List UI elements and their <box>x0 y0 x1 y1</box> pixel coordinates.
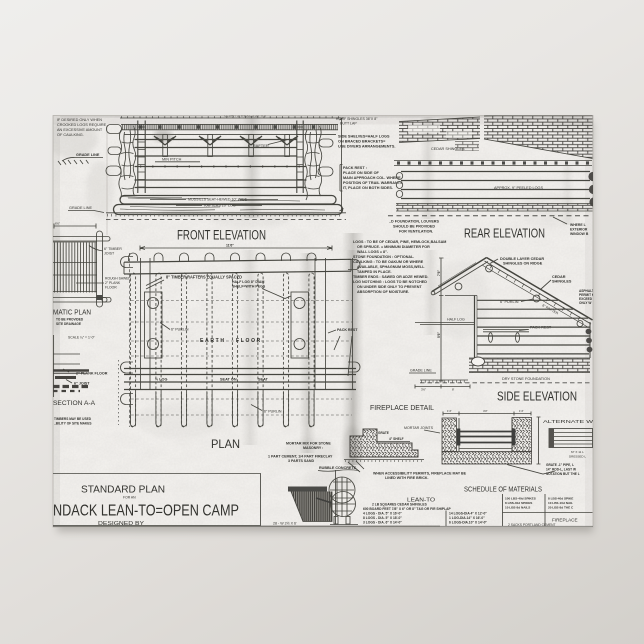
svg-text:5'6": 5'6" <box>437 332 441 338</box>
svg-text:LOG NOTCHING : LOGS TO BE NOTC: LOG NOTCHING : LOGS TO BE NOTCHED <box>353 280 427 284</box>
svg-text:OF CAULKING.: OF CAULKING. <box>57 133 84 137</box>
svg-text:4" SHELF: 4" SHELF <box>389 437 404 441</box>
svg-text:FIREPLACE DETAIL: FIREPLACE DETAIL <box>370 405 434 412</box>
svg-text:14 LOGS-DIA 4" X 12'-0": 14 LOGS-DIA 4" X 12'-0" <box>449 512 487 516</box>
svg-text:FOR AN: FOR AN <box>123 496 136 500</box>
svg-text:WALL LOGS = 8".: WALL LOGS = 8". <box>357 250 388 254</box>
svg-text:TO BE PROVIDED: TO BE PROVIDED <box>56 318 84 322</box>
svg-text:FRONT ELEVATION: FRONT ELEVATION <box>177 228 266 243</box>
svg-text:7'6": 7'6" <box>437 270 441 276</box>
svg-text:6" PURLIN: 6" PURLIN <box>500 300 519 304</box>
svg-text:APPROX. 9" PEELED LOGS: APPROX. 9" PEELED LOGS <box>494 186 544 190</box>
svg-text:10 LBS-8d NAILS: 10 LBS-8d NAILS <box>505 506 530 510</box>
svg-text:FOR VENTILATION.: FOR VENTILATION. <box>399 230 433 234</box>
svg-text:11'6": 11'6" <box>226 244 234 248</box>
svg-text:GRADE LINE: GRADE LINE <box>76 153 100 157</box>
svg-text:1'4": 1'4" <box>519 409 524 413</box>
svg-text:ON UNDER SIDE ONLY TO PREVENT: ON UNDER SIDE ONLY TO PREVENT <box>357 285 422 289</box>
svg-text:..BILITY OF SITE MAKES: ..BILITY OF SITE MAKES <box>54 422 92 426</box>
svg-text:SIDE ELEVATION: SIDE ELEVATION <box>497 390 577 404</box>
svg-text:JOIST: JOIST <box>104 252 115 256</box>
svg-text:DOUBLE LAYER CEDAR: DOUBLE LAYER CEDAR <box>500 257 544 261</box>
svg-text:PACK REST :: PACK REST : <box>343 166 367 170</box>
svg-text:WINDOW B: WINDOW B <box>570 232 589 236</box>
svg-text:WHERE L: WHERE L <box>570 223 586 227</box>
svg-text:8 LOGS - DIA. 5" X 18'-0": 8 LOGS - DIA. 5" X 18'-0" <box>363 516 402 520</box>
svg-text:6" PURLIN: 6" PURLIN <box>264 410 282 414</box>
svg-text:SEAT ON: SEAT ON <box>220 378 237 382</box>
svg-text:1 LOG-DIA.14" X 16'-0": 1 LOG-DIA.14" X 16'-0" <box>449 516 485 520</box>
svg-text:GRADE LINE: GRADE LINE <box>69 206 92 210</box>
svg-text:GRATE -1" PIPE, L: GRATE -1" PIPE, L <box>546 463 574 467</box>
svg-text:8 LBS-40d SPIKES: 8 LBS-40d SPIKES <box>505 501 532 505</box>
svg-text:1 PART CEMENT, 1/4 PART FIRECL: 1 PART CEMENT, 1/4 PART FIRECLAY <box>268 455 333 459</box>
svg-text:ABSORPTION OF MOISTURE.: ABSORPTION OF MOISTURE. <box>357 290 409 294</box>
svg-text:MUDSILLS SEAT-HEWED 10" WIDE: MUDSILLS SEAT-HEWED 10" WIDE <box>188 198 248 202</box>
svg-text:2" PLANK FLOOR: 2" PLANK FLOOR <box>76 372 108 376</box>
svg-text:OR SPRUCE. = MINIMUM DIAMETER: OR SPRUCE. = MINIMUM DIAMETER FOR <box>357 245 430 249</box>
svg-text:IT, PLACE ON BOTH SIDES.: IT, PLACE ON BOTH SIDES. <box>343 186 393 190</box>
svg-text:CAULKING : TO BE OAKUM OR WHER: CAULKING : TO BE OAKUM OR WHERE <box>353 260 424 264</box>
svg-text:EXTERIOR: EXTERIOR <box>570 228 588 232</box>
svg-text:SHINGLES: SHINGLES <box>552 280 572 284</box>
svg-text:8 LBS-40d SPIKE: 8 LBS-40d SPIKE <box>548 497 573 501</box>
svg-text:SCHEDULE OF MATERIALS: SCHEDULE OF MATERIALS <box>464 485 542 494</box>
svg-text:ROOF SHINGLES 36"X 8": ROOF SHINGLES 36"X 8" <box>336 117 378 121</box>
svg-text:100 LBS-40d SPIKES: 100 LBS-40d SPIKES <box>505 497 536 501</box>
svg-text:CEDAR: CEDAR <box>552 275 566 279</box>
svg-text:GRADE LINE: GRADE LINE <box>410 369 432 373</box>
svg-text:½ LOG: ½ LOG <box>155 378 167 382</box>
svg-text:POSITION OF TRAIL WARRANTS: POSITION OF TRAIL WARRANTS <box>343 181 403 185</box>
svg-text:SEAT: SEAT <box>258 378 269 382</box>
svg-text:ROUGH SAWED: ROUGH SAWED <box>105 277 131 281</box>
svg-text:6" PURLIN: 6" PURLIN <box>171 328 189 332</box>
svg-text:LINED WITH FIRE BRICK.: LINED WITH FIRE BRICK. <box>385 476 429 480</box>
svg-text:DRESSED L: DRESSED L <box>569 455 586 459</box>
svg-text:TIMBER ENDS : SAWED OR ADZE HE: TIMBER ENDS : SAWED OR ADZE HEWED. <box>353 275 428 279</box>
svg-text:CROOKED LOGS REQUIRE: CROOKED LOGS REQUIRE <box>57 123 107 127</box>
svg-text:4 LOGS - DIA. 5" X 16'-0": 4 LOGS - DIA. 5" X 16'-0" <box>363 512 402 516</box>
svg-text:ALTERNATE W: ALTERNATE W <box>543 419 593 424</box>
svg-text:DRY STONE FOUNDATION: DRY STONE FOUNDATION <box>502 377 550 381</box>
svg-text:SECTION A-A: SECTION A-A <box>53 400 95 407</box>
svg-text:RAFTERS 10" LOG: RAFTERS 10" LOG <box>204 204 236 208</box>
svg-text:FLOOR: FLOOR <box>236 338 262 344</box>
svg-text:AVAILABLE, SPHAGNUM MOSS,WELL: AVAILABLE, SPHAGNUM MOSS,WELL <box>357 265 425 269</box>
svg-text:CEDAR SHINGLES: CEDAR SHINGLES <box>431 147 465 151</box>
svg-text:EARTH: EARTH <box>200 338 226 344</box>
svg-text:ON BRACED BRACKETS=: ON BRACED BRACKETS= <box>338 140 386 144</box>
svg-text:NOTATION BUT THE L: NOTATION BUT THE L <box>546 472 580 476</box>
svg-text:IF DESIRED ONLY WHEN: IF DESIRED ONLY WHEN <box>57 118 102 122</box>
svg-text:BUTT LAP: BUTT LAP <box>340 122 357 126</box>
svg-text:HALF LOG: HALF LOG <box>447 318 465 322</box>
svg-text:3 PARTS SAND: 3 PARTS SAND <box>288 459 314 463</box>
svg-text:HALF LOG 8" DIAM: HALF LOG 8" DIAM <box>232 280 264 284</box>
svg-text:USE DIVERS ARRANGEMENTS.: USE DIVERS ARRANGEMENTS. <box>338 145 395 149</box>
svg-text:FLOOR: FLOOR <box>105 286 117 290</box>
svg-text:6" TIMBER: 6" TIMBER <box>104 247 122 251</box>
svg-text:AN EXCESSIVE AMOUNT: AN EXCESSIVE AMOUNT <box>57 128 103 132</box>
svg-text:2" PLANK: 2" PLANK <box>105 281 121 285</box>
svg-text:SITE DRAINAGE: SITE DRAINAGE <box>56 322 81 326</box>
svg-text:28 - W 2½ X 6': 28 - W 2½ X 6' <box>273 522 297 526</box>
svg-text:MATIC PLAN: MATIC PLAN <box>53 310 91 317</box>
svg-text:600 BOARD FEET 7/8" X 6" OR 8: 600 BOARD FEET 7/8" X 6" OR 8" T&G OR FI… <box>363 507 451 511</box>
svg-text:MASONRY :: MASONRY : <box>303 446 323 450</box>
svg-text:REAR ELEVATION: REAR ELEVATION <box>464 226 545 241</box>
svg-text:MAIN APPROACH COL. WHERE: MAIN APPROACH COL. WHERE <box>343 176 401 180</box>
svg-text:PLACE ON SIDE OF: PLACE ON SIDE OF <box>343 171 380 175</box>
svg-text:MIN PITCH: MIN PITCH <box>162 158 182 162</box>
svg-text:20 LBS-8d THE C: 20 LBS-8d THE C <box>548 506 574 510</box>
svg-text:..D FOUNDATION, LOUVERS: ..D FOUNDATION, LOUVERS <box>389 220 439 224</box>
svg-text:FIREPLACE: FIREPLACE <box>552 518 578 523</box>
svg-text:3'6": 3'6" <box>421 388 426 392</box>
svg-text:GRATE: GRATE <box>378 431 389 435</box>
svg-text:STANDARD PLAN: STANDARD PLAN <box>81 484 165 496</box>
svg-text:TIMBERS MAY BE USED: TIMBERS MAY BE USED <box>54 417 92 421</box>
svg-text:10 LBS-10d NAIL: 10 LBS-10d NAIL <box>548 501 573 505</box>
svg-text:SHELF=WITH PEGS: SHELF=WITH PEGS <box>232 285 266 289</box>
svg-text:TAMPED IN PLACE.: TAMPED IN PLACE. <box>357 270 392 274</box>
svg-text:PACK REST: PACK REST <box>530 326 552 330</box>
svg-text:MORTAR JOINTS: MORTAR JOINTS <box>404 426 434 430</box>
svg-text:3 LOGS - DIA. 6" X 14'-0": 3 LOGS - DIA. 6" X 14'-0" <box>363 521 402 525</box>
svg-text:SHINGLES ON RIDGE: SHINGLES ON RIDGE <box>503 262 543 266</box>
svg-text:SCALE ¼" = 1'-0": SCALE ¼" = 1'-0" <box>68 336 96 340</box>
svg-text:STONE FOUNDATION : OPTIONAL.: STONE FOUNDATION : OPTIONAL. <box>353 255 414 259</box>
svg-text:M" X 11 L: M" X 11 L <box>571 450 584 454</box>
svg-text:14" ROD-L, LAST W: 14" ROD-L, LAST W <box>546 468 576 472</box>
svg-text:SIDE SHELVES=HALF LOGS: SIDE SHELVES=HALF LOGS <box>338 135 390 139</box>
svg-text:4'0": 4'0" <box>483 409 488 413</box>
svg-text:WHEN ACCESSIBILITY PERMITS, FI: WHEN ACCESSIBILITY PERMITS, FIREPLACE MA… <box>373 472 467 476</box>
svg-text:1'4": 1'4" <box>447 409 452 413</box>
svg-text:CEDAR SHINGLES 36" X 8": CEDAR SHINGLES 36" X 8" <box>224 114 268 118</box>
svg-text:SHOULD BE PROVIDED: SHOULD BE PROVIDED <box>393 225 435 229</box>
svg-text:2 LB SQUARES CEDAR SHINGLES: 2 LB SQUARES CEDAR SHINGLES <box>372 503 428 507</box>
svg-text:LOGS : TO BE OF CEDAR, PINE,: LOGS : TO BE OF CEDAR, PINE, HEMLOCK,BAL… <box>353 240 446 244</box>
svg-text:MORTAR MIX FOR STONE: MORTAR MIX FOR STONE <box>286 442 331 446</box>
svg-text:6 LOGS-DIA.10" X 14'-0": 6 LOGS-DIA.10" X 14'-0" <box>449 521 487 525</box>
svg-text:PLAN: PLAN <box>211 437 240 451</box>
svg-text:ONLY W: ONLY W <box>579 301 591 305</box>
svg-text:8" TIMBER RAFTERS EQUALLY SPAC: 8" TIMBER RAFTERS EQUALLY SPACED <box>166 275 242 280</box>
svg-text:NDACK LEAN-TO=OPEN CAMP: NDACK LEAN-TO=OPEN CAMP <box>53 503 239 520</box>
svg-text:PACK REST: PACK REST <box>337 328 358 332</box>
svg-text:6'6": 6'6" <box>55 222 60 226</box>
